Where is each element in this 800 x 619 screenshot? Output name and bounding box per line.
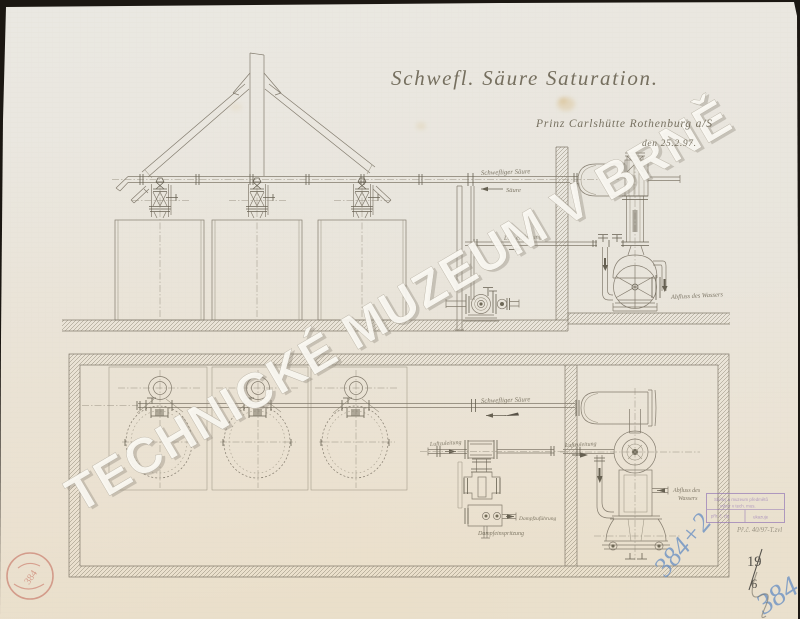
svg-text:Wassers: Wassers (678, 496, 698, 502)
svg-text:Schwefl. Säure Saturation.: Schwefl. Säure Saturation. (391, 66, 657, 90)
svg-text:Př.č. 40/97-T.zvl: Př.č. 40/97-T.zvl (736, 527, 782, 534)
svg-text:Dampfeinspritzung: Dampfeinspritzung (477, 530, 524, 537)
svg-text:den 25.2.97.: den 25.2.97. (642, 139, 696, 149)
svg-text:Sbírky a muzeum předmětů: Sbírky a muzeum předmětů (714, 497, 768, 502)
svg-text:výbor v tech. mus.: výbor v tech. mus. (720, 504, 756, 509)
svg-text:Prinz Carlshütte Rothenburg a/: Prinz Carlshütte Rothenburg a/S (535, 118, 712, 130)
svg-text:Säure: Säure (506, 187, 521, 194)
svg-text:ukazuje: ukazuje (753, 515, 769, 520)
svg-text:Abfluss des: Abfluss des (672, 487, 701, 494)
svg-text:Dampfzuführung: Dampfzuführung (518, 515, 557, 522)
svg-text:přír. č. zlg: přír. č. zlg (711, 514, 730, 519)
